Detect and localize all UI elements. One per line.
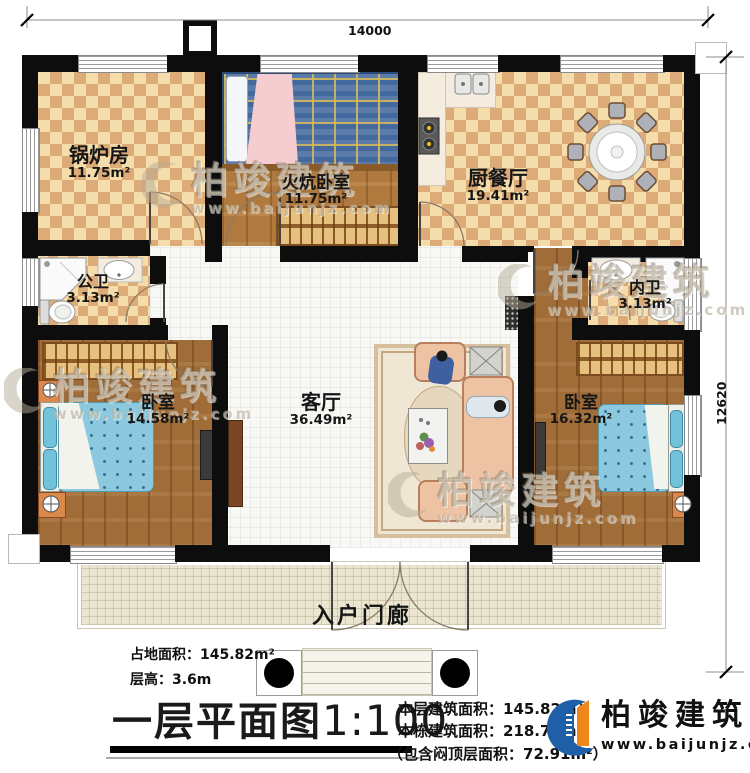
plan-overlay xyxy=(0,0,750,773)
dining-table-set xyxy=(568,103,666,201)
room-label-bedroom-right: 卧室 16.32m² xyxy=(550,394,613,426)
brand-logo-icon xyxy=(546,694,598,766)
room-label-inner-bath: 内卫 3.13m² xyxy=(618,280,671,311)
site-area-text: 占地面积：145.82m² xyxy=(130,644,275,664)
room-name: 火炕卧室 xyxy=(282,174,350,192)
floor-height-text: 层高：3.6m xyxy=(130,669,211,689)
dimension-width: 14000 xyxy=(348,23,392,38)
dimension-height: 12620 xyxy=(714,382,729,426)
room-name: 卧室 xyxy=(550,394,613,412)
room-name: 客厅 xyxy=(290,392,353,413)
stove xyxy=(419,118,439,154)
room-name: 锅炉房 xyxy=(68,145,131,166)
room-name: 卧室 xyxy=(127,394,190,412)
room-area: 36.49m² xyxy=(290,413,353,427)
room-area: 11.75m² xyxy=(68,166,131,180)
room-label-public-bath: 公卫 3.13m² xyxy=(66,274,119,305)
brand-url: www.baijunjz.com xyxy=(601,737,750,753)
room-label-kang-bedroom: 火炕卧室 11.75m² xyxy=(282,174,350,206)
room-area: 3.13m² xyxy=(618,297,671,311)
room-label-porch: 入户门廊 xyxy=(312,598,412,630)
title-underline-thin xyxy=(106,757,420,759)
sofa-side-tables xyxy=(470,347,502,517)
person-reclining-head xyxy=(494,400,506,412)
brand-name: 柏竣建筑 xyxy=(601,701,749,731)
room-label-living-room: 客厅 36.49m² xyxy=(290,392,353,427)
room-name: 厨餐厅 xyxy=(467,168,530,189)
plan-title-name: 一层平面图 xyxy=(112,699,322,745)
room-area: 16.32m² xyxy=(550,412,613,426)
room-area: 3.13m² xyxy=(66,291,119,305)
room-label-boiler: 锅炉房 11.75m² xyxy=(68,145,131,180)
room-area: 19.41m² xyxy=(467,189,530,203)
person-sitting-head xyxy=(437,351,448,362)
room-area: 14.58m² xyxy=(127,412,190,426)
dimension-lines xyxy=(27,6,744,672)
title-underline xyxy=(110,746,412,753)
room-area: 11.75m² xyxy=(282,192,350,206)
kitchen-sink xyxy=(455,74,489,94)
room-label-bedroom-left: 卧室 14.58m² xyxy=(127,394,190,426)
room-name: 内卫 xyxy=(618,280,671,297)
room-label-kitchen-dining: 厨餐厅 19.41m² xyxy=(467,168,530,203)
coffee-table-flowers xyxy=(416,418,435,452)
floor-plan-page: { "dimensions": { "width_label": "14000"… xyxy=(0,0,750,773)
room-name: 公卫 xyxy=(66,274,119,291)
